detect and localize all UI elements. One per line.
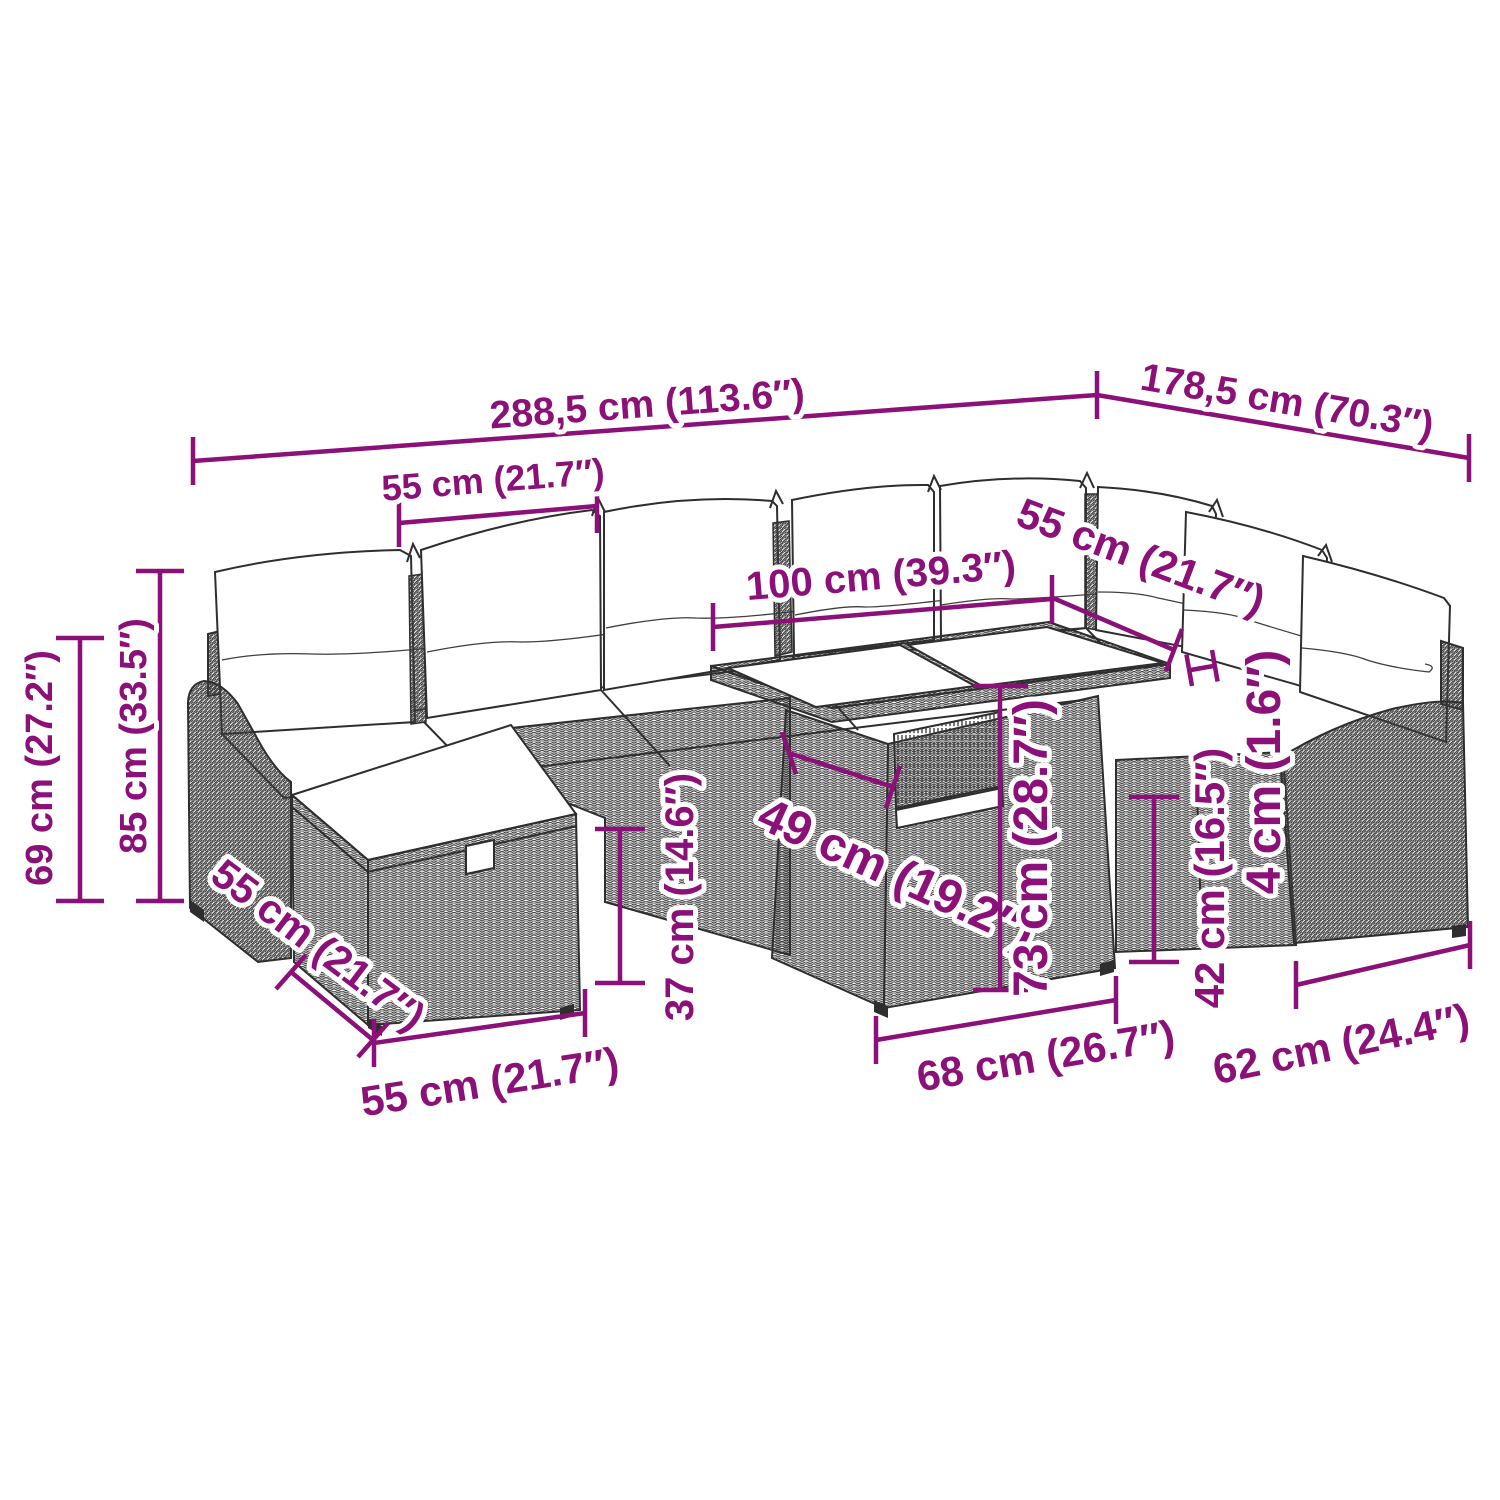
svg-text:73 cm (28.7″): 73 cm (28.7″): [1005, 699, 1058, 997]
svg-text:4 cm (1.6″): 4 cm (1.6″): [1238, 650, 1291, 894]
svg-text:85 cm (33.5″): 85 cm (33.5″): [113, 618, 155, 854]
svg-text:42 cm (16.5″): 42 cm (16.5″): [1186, 748, 1233, 1009]
svg-text:69 cm (27.2″): 69 cm (27.2″): [19, 650, 61, 886]
svg-text:37 cm (14.6″): 37 cm (14.6″): [658, 773, 702, 1021]
